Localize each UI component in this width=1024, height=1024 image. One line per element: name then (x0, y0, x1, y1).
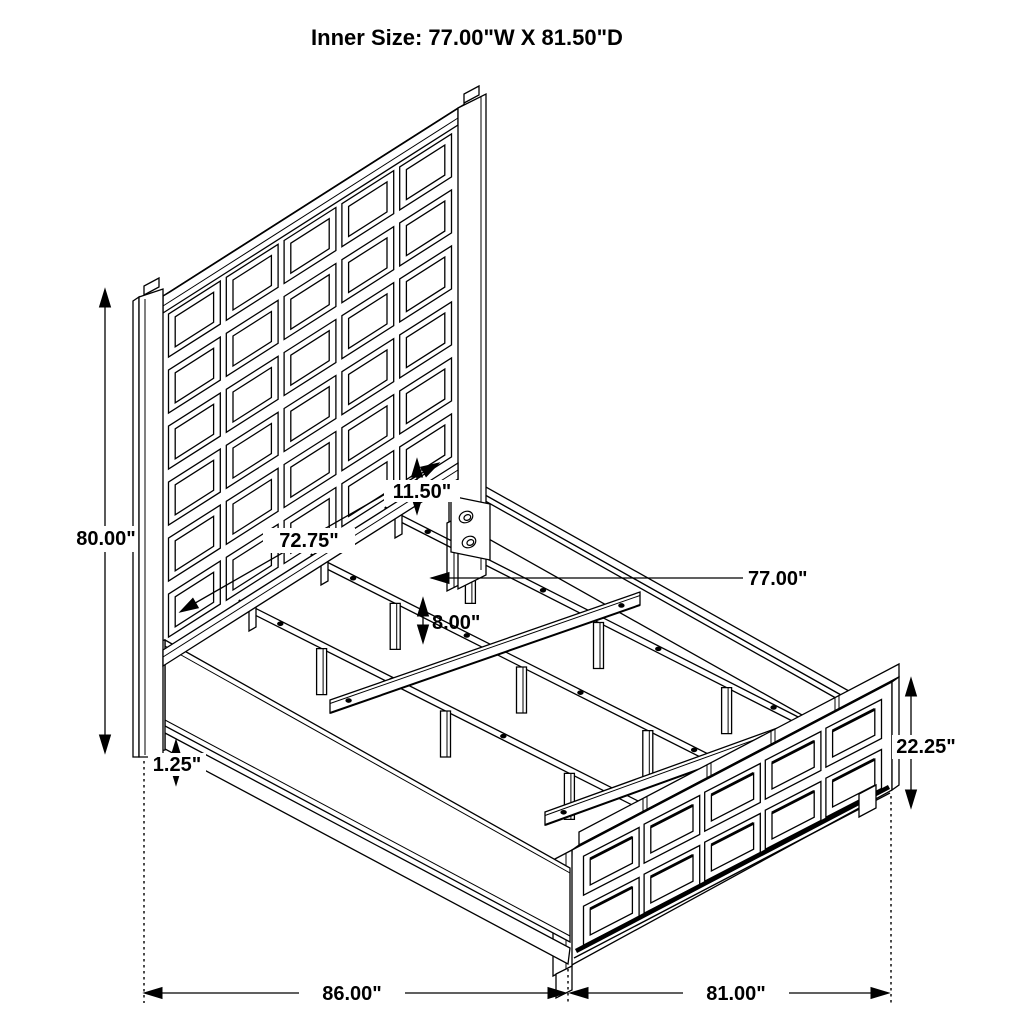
dim-base-trim-height: 1.25" (153, 754, 201, 776)
dim-support-leg-height: 8.00" (432, 612, 480, 634)
dim-overall-width: 86.00" (322, 983, 382, 1005)
dim-overall-depth: 81.00" (706, 983, 766, 1005)
dimension-lines-shape (418, 598, 429, 616)
slat-supports-shape (345, 698, 351, 703)
footboard-shape (892, 677, 899, 790)
slat-supports-shape (350, 576, 356, 581)
slat-supports-shape (691, 748, 697, 753)
headboard-shape (139, 289, 163, 757)
slat-supports-shape (425, 529, 431, 534)
slat-supports-shape (311, 554, 732, 766)
slat-supports-shape (618, 603, 624, 608)
slat-supports-shape (577, 690, 583, 695)
bed-frame-art (100, 86, 917, 1003)
dim-headboard-height: 80.00" (76, 528, 136, 550)
slat-supports-shape (643, 731, 653, 777)
diagram-canvas: Inner Size: 77.00"W X 81.50"D 80.00" 72.… (0, 0, 1024, 1024)
slat-supports-shape (441, 711, 451, 757)
dimension-lines-shape (100, 735, 111, 753)
side-rail-left-shape (165, 646, 570, 873)
dim-inner-rail-width: 77.00" (748, 568, 808, 590)
slat-supports-shape (722, 688, 732, 734)
slat-supports-shape (655, 647, 661, 652)
dimension-lines-shape (906, 790, 917, 808)
mounting-bracket-shape (451, 496, 490, 560)
slat-supports-shape (540, 588, 546, 593)
side-rail-right-shape (455, 484, 850, 706)
slat-supports-shape (594, 623, 604, 669)
dim-headboard-to-rail-gap: 11.50" (393, 481, 451, 503)
slat-supports-shape (770, 705, 776, 710)
dimension-lines-shape (570, 988, 588, 999)
dim-footboard-height: 22.25" (896, 736, 956, 758)
bed-dimension-diagram: Inner Size: 77.00"W X 81.50"D 80.00" 72.… (0, 0, 1024, 1024)
slat-supports-shape (317, 649, 327, 695)
dimension-lines-shape (871, 988, 889, 999)
dimension-lines-shape (144, 988, 162, 999)
dimension-lines-shape (418, 625, 429, 643)
dim-headboard-panel-width: 72.75" (279, 530, 339, 552)
side-rail-right (447, 473, 856, 742)
slat-supports-shape (500, 734, 506, 739)
side-rail-left-shape (165, 640, 570, 942)
side-rail-left-shape (165, 720, 570, 936)
slat-supports-shape (560, 810, 566, 815)
slat-supports-shape (277, 622, 283, 627)
diagram-title: Inner Size: 77.00"W X 81.50"D (311, 25, 623, 50)
mounting-bracket (451, 496, 490, 560)
slat-supports-shape (517, 667, 527, 713)
slat-supports-shape (390, 603, 400, 649)
dimension-lines-shape (100, 289, 111, 307)
dimension-lines-shape (906, 678, 917, 696)
